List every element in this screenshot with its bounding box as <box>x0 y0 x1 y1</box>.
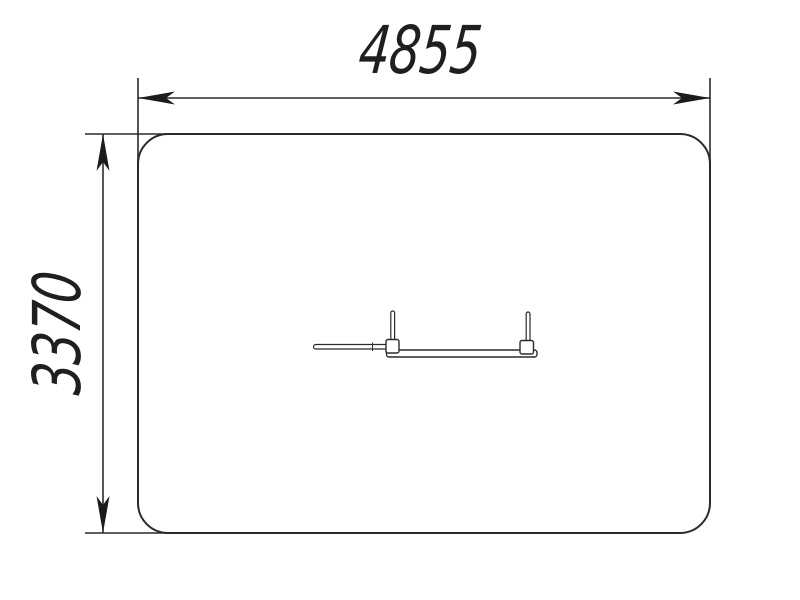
fixture-block-left <box>386 340 399 354</box>
technical-drawing <box>0 0 800 600</box>
fixture-rod <box>314 345 389 350</box>
fixture-pin-right <box>526 312 530 343</box>
height-dimension-label: 3370 <box>25 269 91 397</box>
fixture-bar <box>387 350 538 357</box>
fixture-block-right <box>520 341 534 355</box>
fixture-pin-left <box>391 311 395 342</box>
drawing-canvas: 4855 3370 <box>0 0 800 600</box>
panel-outline <box>138 134 710 533</box>
width-dimension-label: 4855 <box>356 18 484 84</box>
